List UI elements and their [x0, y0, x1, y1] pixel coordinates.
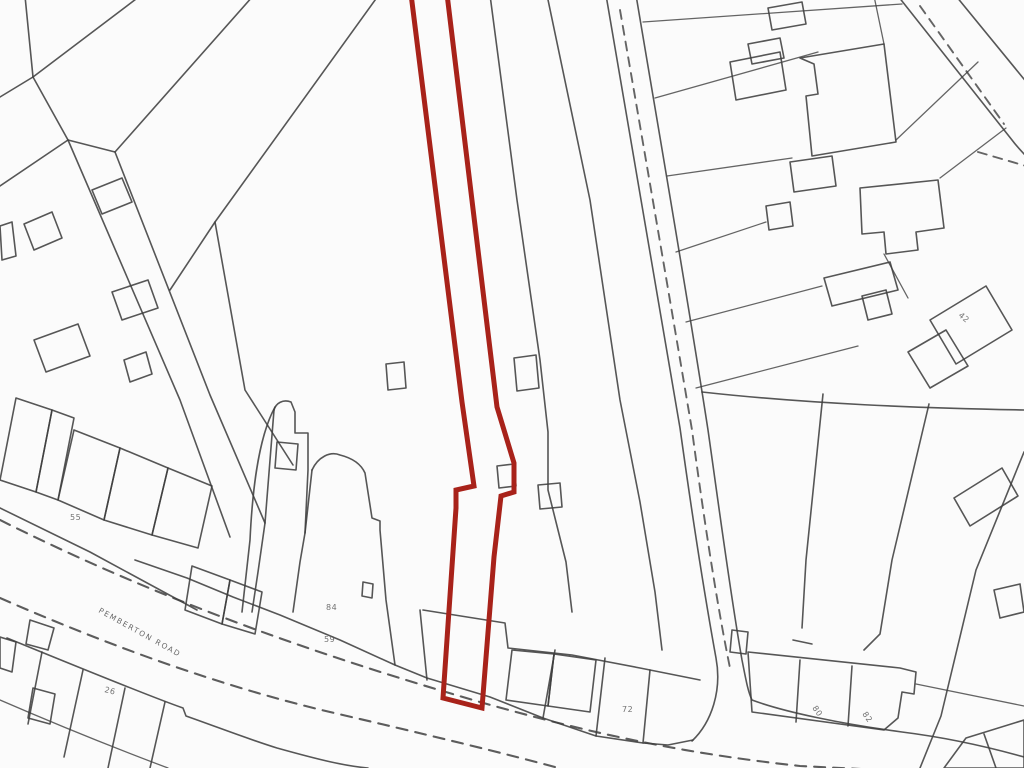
plot-red-outline — [411, 0, 514, 708]
plot-label-42: 42 — [957, 311, 971, 325]
site-plan-map: PEMBERTON ROAD 55 84 59 26 72 80 82 42 — [0, 0, 1024, 768]
map-canvas: PEMBERTON ROAD 55 84 59 26 72 80 82 42 — [0, 0, 1024, 768]
plot-label-82: 82 — [860, 710, 874, 724]
plot-label-84: 84 — [326, 603, 337, 612]
plot-label-26: 26 — [104, 685, 117, 696]
road-edges — [606, 0, 1024, 757]
plot-label-55: 55 — [70, 513, 81, 522]
building-outlines — [0, 2, 1024, 768]
road-name-label: PEMBERTON ROAD — [97, 606, 183, 659]
highlighted-plot-boundary — [411, 0, 514, 708]
plot-label-72: 72 — [622, 705, 633, 714]
plot-label-59: 59 — [324, 635, 335, 644]
